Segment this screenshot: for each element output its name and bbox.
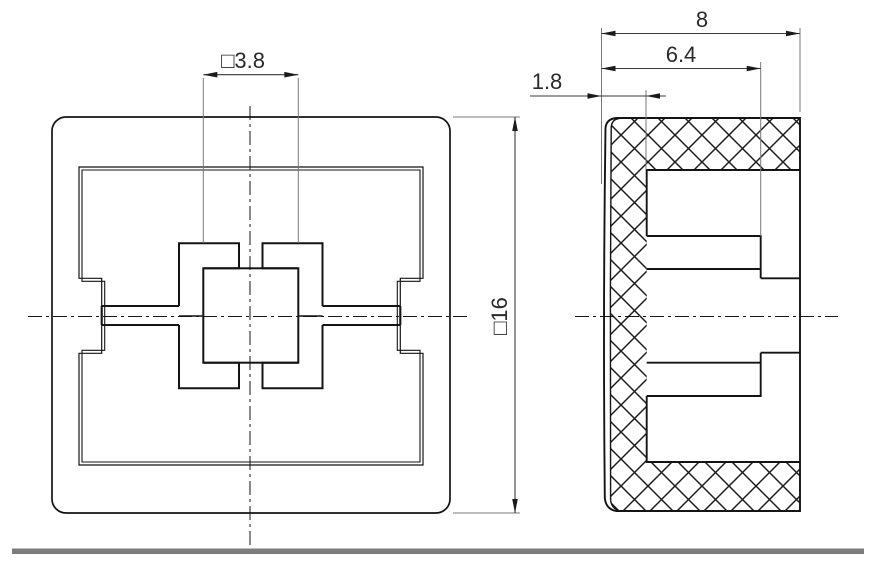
side-dim-1-8: 1.8	[530, 69, 666, 170]
front-view: □3.8 □16	[28, 48, 520, 550]
dimension-label-square-16: □16	[487, 297, 512, 335]
dimension-label-6-4: 6.4	[666, 42, 697, 67]
front-right-slot	[298, 306, 400, 325]
front-left-slot	[102, 306, 204, 325]
dimension-label-square-3-8: □3.8	[221, 48, 265, 73]
drawing-sheet: □3.8 □16	[0, 0, 876, 564]
dimension-label-8: 8	[696, 7, 708, 32]
front-dim-3-8: □3.8	[203, 48, 298, 243]
technical-drawing-canvas: □3.8 □16	[0, 0, 876, 564]
side-section-view: 8 6.4 1.8	[530, 7, 838, 511]
page-divider-bar	[12, 549, 864, 555]
front-center-square-hole	[203, 268, 298, 362]
dimension-label-1-8: 1.8	[532, 69, 563, 94]
front-outer-square	[52, 117, 450, 513]
side-rear-notch-lines	[761, 278, 800, 352]
section-hatch-area	[611, 119, 800, 511]
front-dim-16: □16	[453, 117, 520, 513]
